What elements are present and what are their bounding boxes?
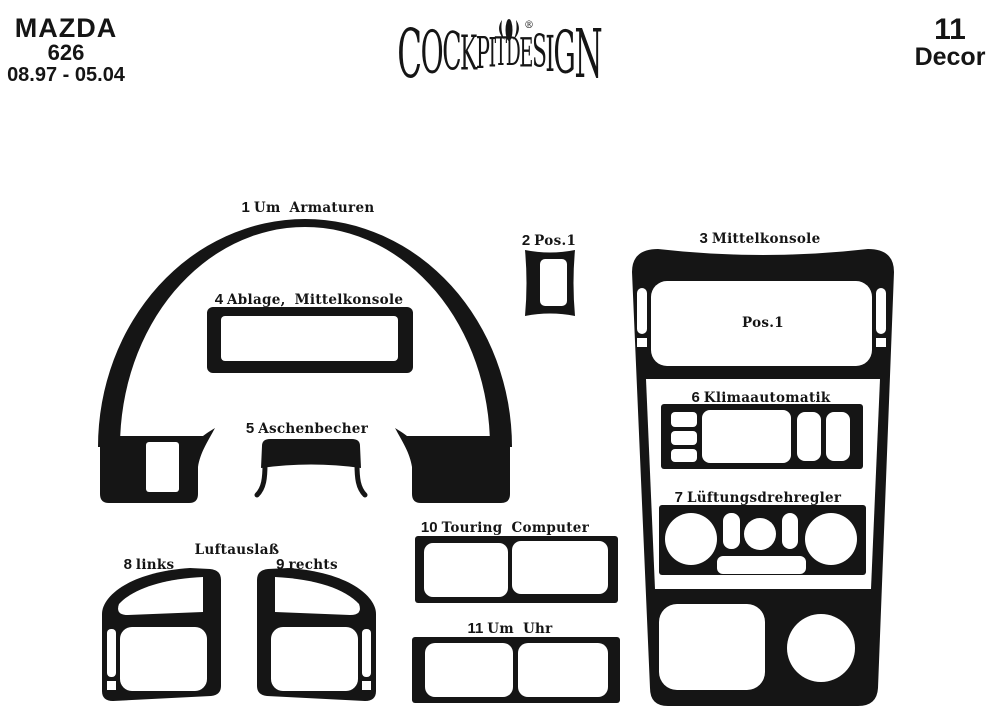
console-pos1-label: Pos.1 xyxy=(742,315,784,331)
part6-label: 6 Klimaautomatik xyxy=(691,389,830,406)
part10-label: 10 Touring Computer xyxy=(421,519,589,536)
part8-left-vent-shape xyxy=(102,568,221,701)
vents-caption-label: Luftauslaß xyxy=(195,542,280,558)
part10-touring-computer-shape xyxy=(415,536,618,603)
part2-label: 2 Pos.1 xyxy=(522,232,576,249)
part5-label: 5 Aschenbecher xyxy=(246,420,368,437)
dash-kit-diagram xyxy=(0,0,1000,725)
part9-label: 9 rechts xyxy=(276,556,338,573)
part3-label: 3 Mittelkonsole xyxy=(699,230,820,247)
part7-vent-dial-panel-shape xyxy=(659,505,866,575)
part5-ashtray-shape xyxy=(257,439,365,495)
part7-label: 7 Lüftungsdrehregler xyxy=(675,489,842,506)
part1-label: 1 Um Armaturen xyxy=(242,199,375,216)
part6-climate-panel-shape xyxy=(661,404,863,469)
part11-label: 11 Um Uhr xyxy=(467,620,552,637)
part11-clock-bezel-shape xyxy=(412,637,620,703)
part4-storage-tray-shape xyxy=(207,307,413,373)
part9-right-vent-shape xyxy=(257,568,376,701)
part4-label: 4 Ablage, Mittelkonsole xyxy=(215,291,404,308)
part8-label: 8 links xyxy=(124,556,175,573)
part2-small-frame-shape xyxy=(525,250,575,316)
catalog-page: MAZDA 626 08.97 - 05.04 C O C K P I T D … xyxy=(0,0,1000,725)
